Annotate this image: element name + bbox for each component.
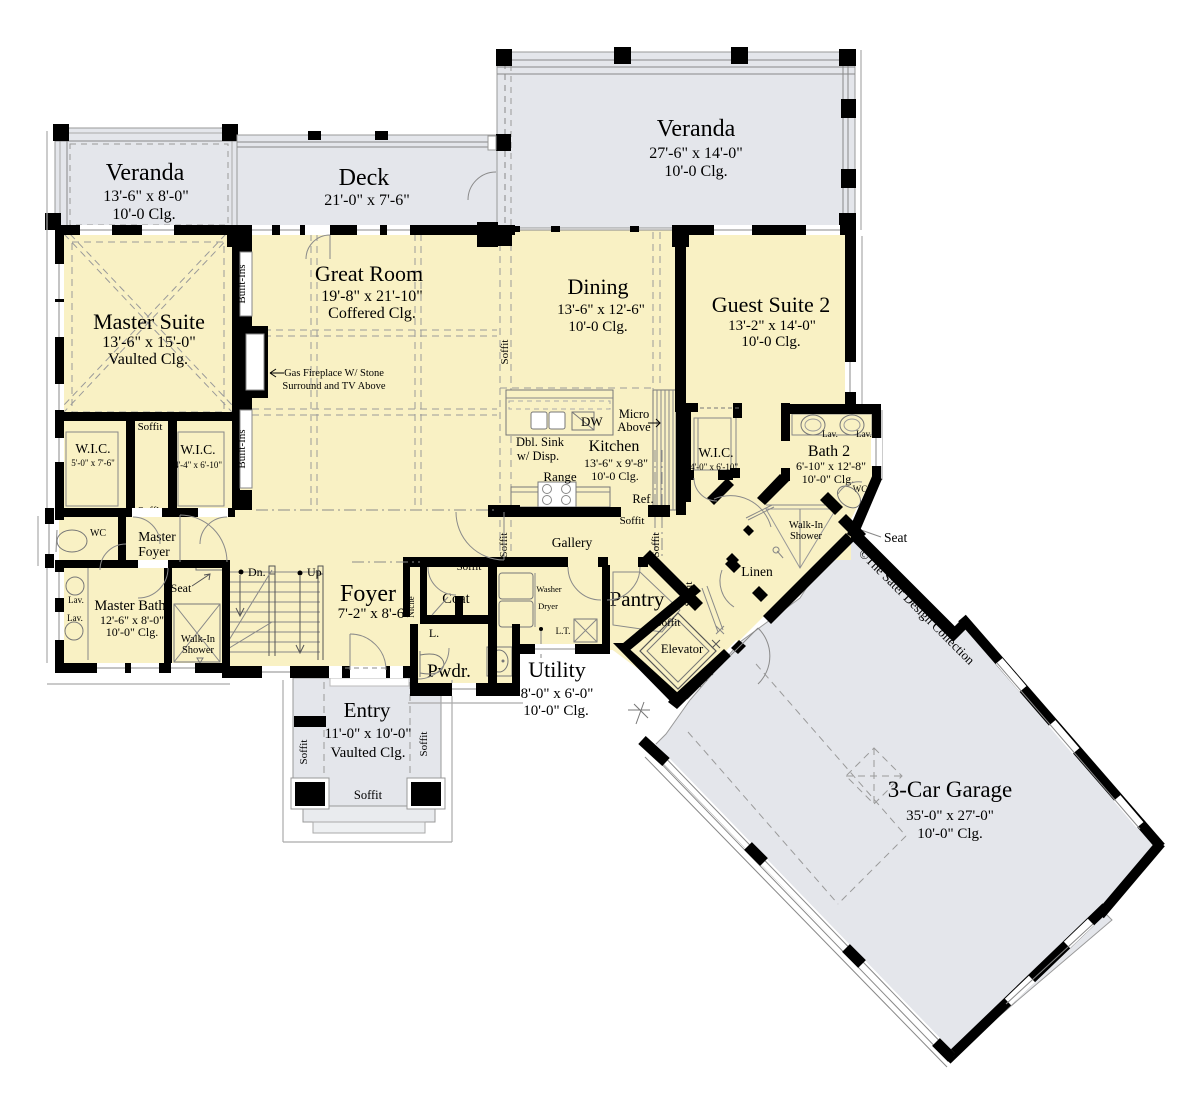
svg-text:Built-Ins: Built-Ins <box>236 264 248 303</box>
svg-text:Surround and TV Above: Surround and TV Above <box>282 381 385 392</box>
svg-text:Lav.: Lav. <box>856 429 872 439</box>
svg-text:Deck: Deck <box>339 165 390 191</box>
svg-text:Dryer: Dryer <box>538 601 558 611</box>
svg-text:13'-6" x 9'-8": 13'-6" x 9'-8" <box>584 456 648 470</box>
svg-text:w/ Disp.: w/ Disp. <box>517 449 559 463</box>
svg-text:Entry: Entry <box>344 698 391 722</box>
svg-text:Guest Suite 2: Guest Suite 2 <box>712 292 831 317</box>
svg-text:13'-6" x 12'-6": 13'-6" x 12'-6" <box>557 302 645 318</box>
svg-text:Up: Up <box>307 565 322 579</box>
svg-text:13'-6" x 15'-0": 13'-6" x 15'-0" <box>102 334 195 351</box>
svg-text:W.I.C.: W.I.C. <box>698 445 733 460</box>
svg-text:Linen: Linen <box>741 564 773 579</box>
svg-text:W.I.C.: W.I.C. <box>180 442 215 457</box>
svg-text:Veranda: Veranda <box>657 116 736 142</box>
svg-text:11'-0" x 10'-0": 11'-0" x 10'-0" <box>324 726 411 742</box>
svg-text:27'-6" x 14'-0": 27'-6" x 14'-0" <box>649 145 742 162</box>
svg-text:13'-2" x 14'-0": 13'-2" x 14'-0" <box>728 318 816 334</box>
svg-text:10'-0 Clg.: 10'-0 Clg. <box>741 334 800 350</box>
svg-text:10'-0" Clg.: 10'-0" Clg. <box>917 826 983 842</box>
svg-text:Pantry: Pantry <box>610 587 665 611</box>
svg-text:Kitchen: Kitchen <box>589 438 640 455</box>
svg-text:Soffit: Soffit <box>298 740 310 765</box>
svg-text:L.: L. <box>429 626 439 640</box>
svg-text:Lav.: Lav. <box>67 613 83 623</box>
svg-text:Built-Ins: Built-Ins <box>236 429 248 468</box>
svg-text:DW: DW <box>581 414 603 429</box>
svg-text:Pwdr.: Pwdr. <box>427 661 471 682</box>
svg-text:10'-0 Clg.: 10'-0 Clg. <box>664 163 727 180</box>
svg-text:Shower: Shower <box>790 531 823 542</box>
svg-text:Dbl. Sink: Dbl. Sink <box>516 435 565 449</box>
svg-text:Gallery: Gallery <box>552 535 593 550</box>
svg-text:Seat: Seat <box>171 581 192 595</box>
svg-text:Soffit: Soffit <box>418 732 430 757</box>
svg-text:10'-0" Clg.: 10'-0" Clg. <box>106 625 158 639</box>
svg-text:Foyer: Foyer <box>340 581 396 607</box>
svg-text:8'-0" x 6'-0": 8'-0" x 6'-0" <box>521 686 594 702</box>
svg-text:Soffit: Soffit <box>138 421 163 433</box>
svg-text:Seat: Seat <box>884 530 907 545</box>
svg-text:13'-6" x 8'-0": 13'-6" x 8'-0" <box>103 188 188 205</box>
svg-text:Bath 2: Bath 2 <box>808 443 850 460</box>
svg-text:19'-8" x 21'-10": 19'-8" x 21'-10" <box>321 288 422 305</box>
svg-text:Great Room: Great Room <box>315 261 423 286</box>
svg-text:3-Car Garage: 3-Car Garage <box>888 777 1013 802</box>
svg-text:Foyer: Foyer <box>138 544 170 559</box>
svg-text:Ref.: Ref. <box>632 492 653 506</box>
svg-text:W.I.C.: W.I.C. <box>75 441 110 456</box>
svg-text:WC: WC <box>90 528 106 539</box>
svg-text:Above: Above <box>617 420 651 434</box>
svg-text:Vaulted Clg.: Vaulted Clg. <box>331 745 406 761</box>
svg-text:Shower: Shower <box>182 645 215 656</box>
svg-text:Dn.: Dn. <box>248 565 266 579</box>
svg-text:Micro: Micro <box>619 407 650 421</box>
svg-text:10'-0 Clg.: 10'-0 Clg. <box>591 469 639 483</box>
svg-text:Lav.: Lav. <box>822 429 838 439</box>
svg-text:Washer: Washer <box>536 584 561 594</box>
svg-text:7'-2" x 8'-6": 7'-2" x 8'-6" <box>338 606 411 622</box>
svg-text:Coffered Clg.: Coffered Clg. <box>328 305 416 322</box>
svg-text:Vaulted Clg.: Vaulted Clg. <box>108 351 188 368</box>
svg-text:Soffit: Soffit <box>620 515 645 527</box>
svg-text:10'-0 Clg.: 10'-0 Clg. <box>112 206 175 223</box>
svg-text:5'-0" x 7'-6": 5'-0" x 7'-6" <box>71 458 115 468</box>
svg-text:Utility: Utility <box>528 657 585 682</box>
svg-text:10'-0" Clg.: 10'-0" Clg. <box>523 703 589 719</box>
svg-text:21'-0" x 7'-6": 21'-0" x 7'-6" <box>324 192 409 209</box>
svg-text:4'-4" x 6'-10": 4'-4" x 6'-10" <box>174 460 222 470</box>
svg-text:Gas Fireplace W/ Stone: Gas Fireplace W/ Stone <box>284 368 384 379</box>
svg-text:35'-0" x 27'-0": 35'-0" x 27'-0" <box>906 808 994 824</box>
svg-text:Walk-In: Walk-In <box>181 634 216 645</box>
svg-text:10'-0 Clg.: 10'-0 Clg. <box>568 319 627 335</box>
svg-text:Dining: Dining <box>567 274 628 299</box>
svg-text:6'-10" x 12'-8": 6'-10" x 12'-8" <box>796 459 866 473</box>
svg-text:10'-0" Clg.: 10'-0" Clg. <box>802 472 854 486</box>
svg-text:Soffit: Soffit <box>499 340 511 365</box>
svg-text:Soffit: Soffit <box>354 788 383 802</box>
svg-text:Range: Range <box>543 469 576 484</box>
svg-text:Veranda: Veranda <box>106 160 185 186</box>
svg-text:Lav.: Lav. <box>68 595 84 605</box>
svg-text:Master Bath: Master Bath <box>94 598 166 614</box>
svg-text:Master Suite: Master Suite <box>93 309 205 334</box>
svg-text:Elevator: Elevator <box>661 642 704 656</box>
svg-text:Walk-In: Walk-In <box>789 520 824 531</box>
svg-text:L.T.: L.T. <box>556 626 571 636</box>
